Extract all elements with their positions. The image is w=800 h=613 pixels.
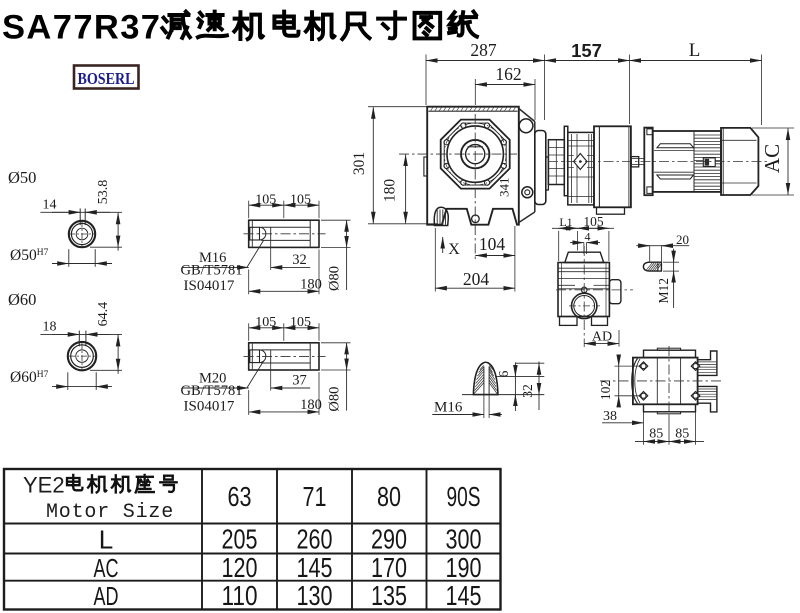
svg-text:104: 104	[479, 234, 506, 254]
svg-text:4: 4	[585, 230, 591, 244]
svg-text:341: 341	[497, 178, 512, 198]
svg-text:71: 71	[303, 481, 327, 512]
svg-text:145: 145	[446, 580, 482, 611]
svg-text:Motor Size: Motor Size	[46, 501, 174, 524]
svg-text:287: 287	[470, 40, 497, 60]
svg-text:102: 102	[598, 380, 613, 400]
svg-text:120: 120	[222, 552, 258, 583]
svg-text:301: 301	[351, 152, 368, 175]
svg-text:GB/T5781: GB/T5781	[181, 383, 243, 399]
svg-text:105: 105	[290, 192, 311, 207]
svg-text:32: 32	[520, 384, 535, 398]
svg-text:105: 105	[255, 315, 276, 330]
svg-text:190: 190	[446, 552, 482, 583]
svg-text:Ø80: Ø80	[327, 387, 343, 412]
svg-text:135: 135	[371, 580, 407, 611]
svg-text:Ø50: Ø50	[8, 168, 36, 187]
svg-text:105: 105	[583, 214, 604, 229]
svg-text:204: 204	[463, 269, 490, 289]
svg-text:64.4: 64.4	[96, 302, 111, 327]
svg-text:IS04017: IS04017	[184, 278, 235, 294]
svg-text:162: 162	[495, 64, 521, 84]
svg-text:130: 130	[297, 580, 333, 611]
svg-text:14: 14	[43, 198, 57, 213]
svg-text:L: L	[99, 525, 113, 555]
svg-text:90S: 90S	[447, 481, 481, 512]
svg-text:145: 145	[297, 552, 333, 583]
svg-text:AC: AC	[760, 144, 784, 173]
svg-text:85: 85	[649, 427, 663, 442]
svg-text:M12: M12	[656, 278, 671, 304]
svg-text:110: 110	[222, 580, 258, 611]
svg-text:290: 290	[371, 524, 407, 555]
svg-text:260: 260	[297, 524, 333, 555]
svg-text:BOSERL: BOSERL	[78, 69, 135, 88]
svg-text:20: 20	[676, 232, 689, 247]
svg-text:105: 105	[255, 192, 276, 207]
svg-text:IS04017: IS04017	[184, 399, 235, 415]
svg-text:18: 18	[43, 320, 57, 335]
svg-text:180: 180	[382, 179, 399, 203]
svg-text:GB/T5781: GB/T5781	[181, 263, 243, 279]
svg-text:37: 37	[292, 373, 307, 389]
svg-text:105: 105	[290, 315, 311, 330]
svg-text:Ø80: Ø80	[327, 266, 343, 291]
svg-text:L1: L1	[559, 215, 572, 229]
svg-text:38: 38	[603, 409, 617, 424]
svg-text:SA77R37: SA77R37	[2, 9, 161, 47]
svg-text:6: 6	[496, 370, 511, 377]
svg-text:205: 205	[222, 524, 258, 555]
svg-text:AD: AD	[592, 329, 612, 344]
svg-text:Ø60: Ø60	[8, 290, 36, 309]
svg-text:M16: M16	[434, 400, 463, 416]
svg-text:300: 300	[446, 524, 482, 555]
svg-text:80: 80	[377, 481, 401, 512]
svg-text:53.8: 53.8	[96, 180, 111, 205]
svg-text:180: 180	[300, 397, 322, 413]
svg-text:170: 170	[371, 552, 407, 583]
svg-text:157: 157	[571, 40, 602, 61]
svg-text:180: 180	[300, 276, 322, 292]
svg-text:AD: AD	[94, 581, 119, 611]
svg-text:63: 63	[228, 481, 252, 512]
svg-text:32: 32	[292, 252, 307, 268]
svg-text:X: X	[448, 241, 460, 258]
svg-text:YE2: YE2	[23, 473, 65, 498]
svg-text:AC: AC	[94, 553, 119, 583]
svg-text:85: 85	[675, 427, 689, 442]
svg-text:L: L	[689, 40, 701, 61]
